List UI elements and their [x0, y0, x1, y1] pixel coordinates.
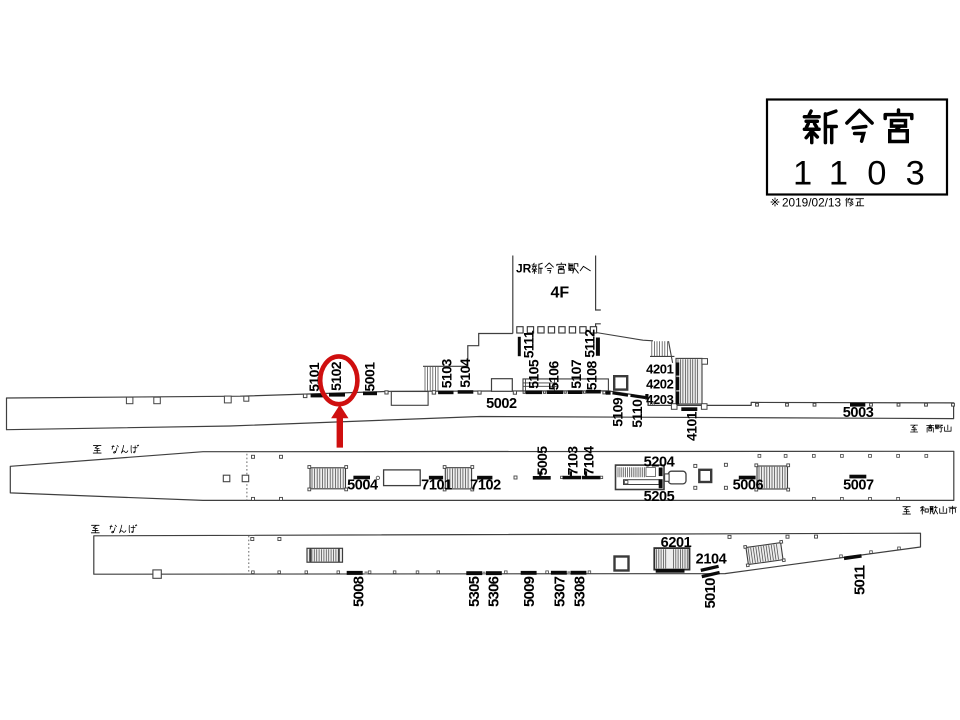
svg-text:7102: 7102	[470, 478, 501, 494]
svg-text:6201: 6201	[661, 535, 692, 551]
svg-text:JR: JR	[516, 262, 532, 276]
svg-text:5004: 5004	[347, 478, 378, 494]
svg-text:5002: 5002	[486, 396, 517, 412]
svg-text:4101: 4101	[683, 411, 699, 441]
svg-text:5102: 5102	[328, 361, 344, 391]
svg-text:5307: 5307	[552, 576, 569, 607]
svg-text:5103: 5103	[439, 358, 455, 388]
svg-text:5305: 5305	[466, 576, 483, 607]
svg-text:5001: 5001	[362, 362, 378, 392]
svg-text:7104: 7104	[580, 446, 596, 476]
svg-text:5112: 5112	[582, 329, 598, 358]
svg-text:2019/02/13: 2019/02/13	[782, 196, 841, 210]
svg-text:5007: 5007	[843, 478, 874, 494]
svg-text:5010: 5010	[702, 578, 719, 609]
svg-text:7101: 7101	[421, 478, 452, 494]
svg-text:5109: 5109	[610, 397, 626, 427]
svg-text:4201: 4201	[646, 361, 673, 376]
svg-text:5205: 5205	[644, 489, 675, 505]
svg-text:5306: 5306	[486, 576, 503, 607]
svg-text:5006: 5006	[733, 478, 764, 494]
svg-text:2104: 2104	[696, 551, 727, 567]
svg-text:5204: 5204	[644, 455, 675, 471]
svg-text:4202: 4202	[646, 377, 673, 392]
svg-text:4F: 4F	[551, 285, 570, 302]
svg-text:5110: 5110	[629, 399, 645, 428]
svg-text:7103: 7103	[565, 446, 581, 476]
svg-text:5011: 5011	[852, 565, 869, 595]
svg-text:5111: 5111	[521, 330, 537, 358]
svg-text:5009: 5009	[521, 576, 538, 607]
svg-text:5005: 5005	[534, 446, 550, 476]
svg-text:5008: 5008	[351, 576, 368, 607]
svg-text:5308: 5308	[572, 576, 589, 607]
svg-text:5105: 5105	[525, 359, 541, 389]
svg-text:5106: 5106	[546, 360, 562, 390]
svg-text:5104: 5104	[457, 358, 473, 388]
svg-text:5108: 5108	[584, 360, 600, 390]
svg-text:5107: 5107	[568, 359, 584, 389]
svg-text:1103: 1103	[793, 155, 944, 193]
svg-text:5003: 5003	[843, 405, 874, 421]
